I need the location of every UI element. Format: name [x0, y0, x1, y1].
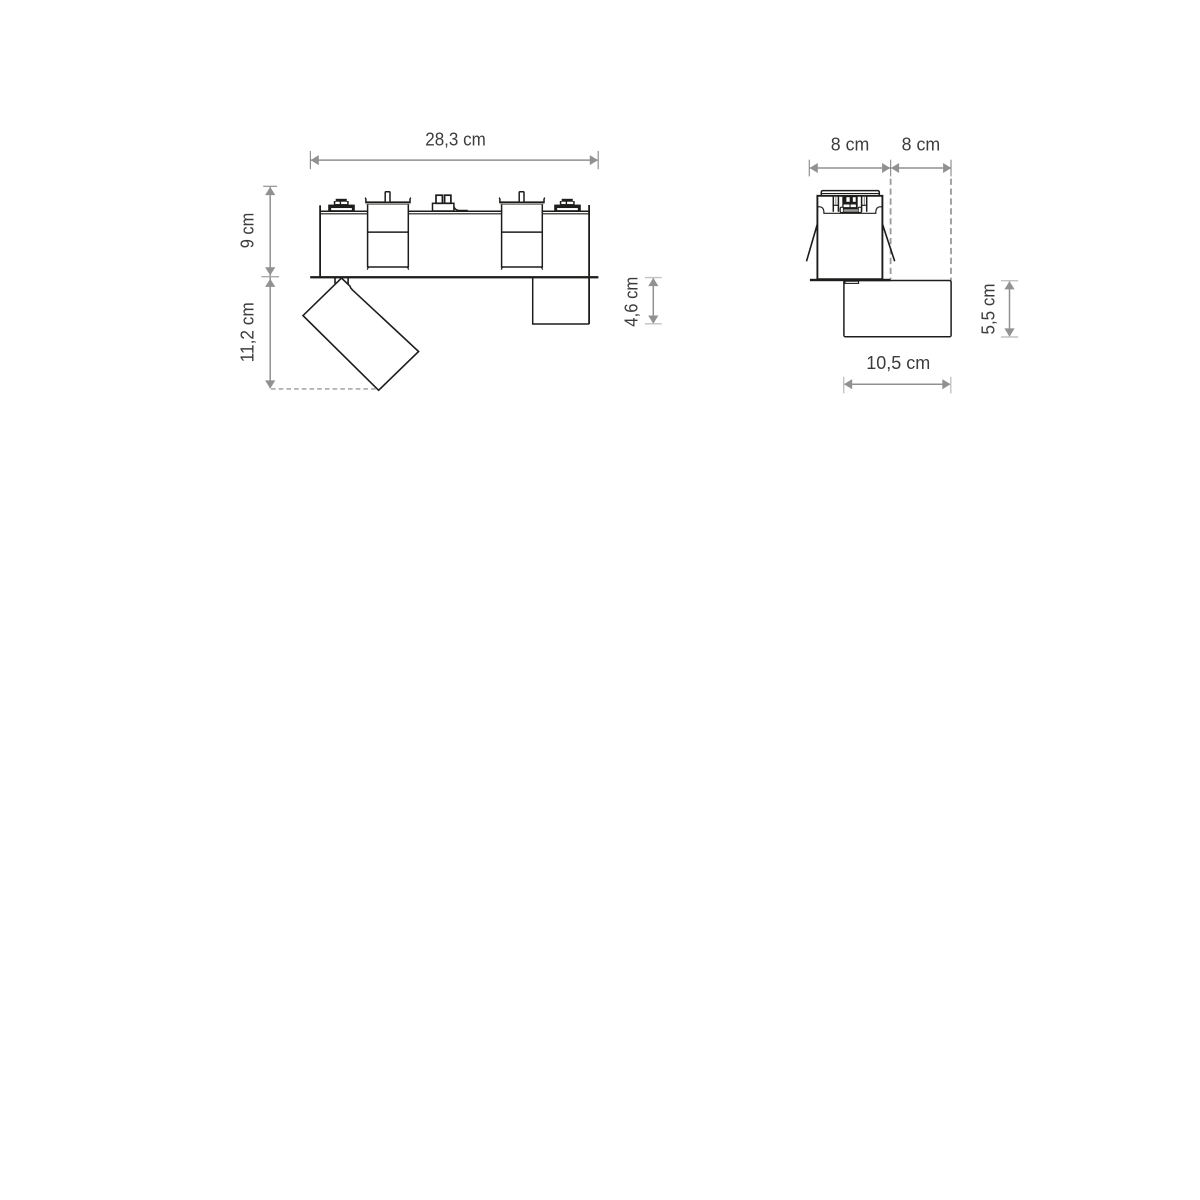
svg-text:11,2 cm: 11,2 cm: [237, 302, 258, 362]
svg-text:9 cm: 9 cm: [237, 213, 258, 249]
svg-text:8 cm: 8 cm: [902, 134, 941, 155]
svg-text:5,5 cm: 5,5 cm: [978, 284, 999, 335]
svg-text:4,6 cm: 4,6 cm: [620, 277, 641, 327]
svg-text:8 cm: 8 cm: [831, 134, 870, 155]
svg-text:28,3 cm: 28,3 cm: [425, 128, 486, 149]
svg-text:10,5 cm: 10,5 cm: [866, 352, 930, 373]
